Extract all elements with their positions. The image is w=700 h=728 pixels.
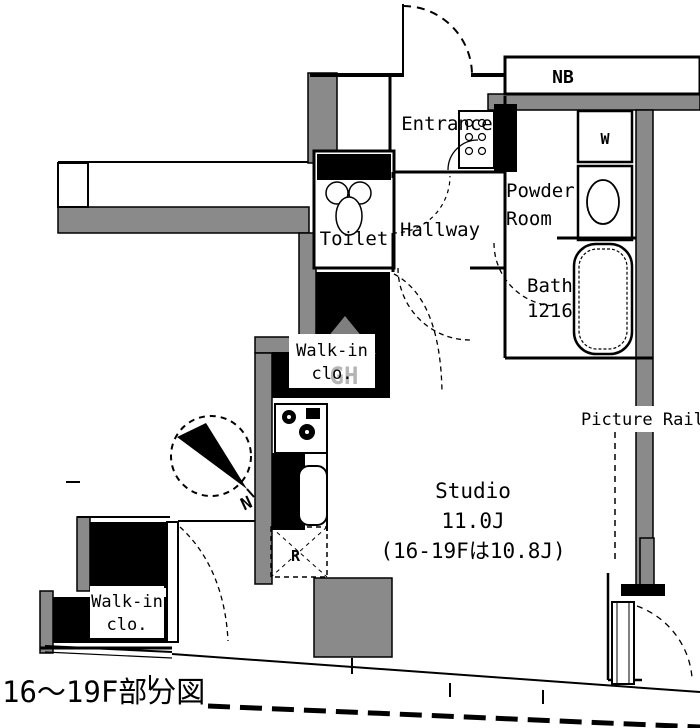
bathtub (574, 244, 632, 354)
caption-floor-range: 16〜19F部分図 (2, 675, 205, 709)
label-picture-rail: Picture Rail (581, 410, 700, 430)
kitchen-sink (299, 466, 327, 525)
label-entrance: Entrance (401, 113, 493, 135)
label-hallway: Hallway (400, 219, 480, 241)
washbasin-box (578, 166, 632, 240)
floor-plan-canvas: NB Entrance Toilet Hallway W Powder Room… (0, 0, 700, 728)
label-walkin-bottom-1: Walk-in (91, 592, 163, 612)
label-bath-1: Bath (527, 275, 573, 297)
label-walkin-mid-1: Walk-in (296, 341, 368, 361)
compass-needle-icon (177, 423, 247, 489)
label-studio-2: 11.0J (441, 509, 504, 533)
label-nb: NB (552, 67, 574, 88)
label-bath-2: 1216 (527, 300, 573, 322)
closet-bl-black-upper (90, 522, 170, 588)
wall-top-left-band (58, 207, 309, 233)
wall-closet-left-upper (77, 517, 90, 591)
wall-balcony-cap-black (621, 584, 665, 596)
walkin-mid-door-arc (394, 274, 442, 392)
wall-balcony-column (640, 538, 654, 586)
label-studio-3: (16-19Fは10.8J) (380, 539, 565, 563)
label-toilet: Toilet (320, 228, 389, 250)
balcony-edge-left-b (45, 652, 172, 658)
balcony-outer-dashed-wall (208, 706, 700, 727)
label-fridge: R (291, 547, 301, 565)
nb-band (505, 57, 700, 94)
wall-column-bottom (314, 578, 392, 657)
wall-top-right-band (488, 94, 700, 110)
label-washer: W (600, 130, 610, 148)
closet-bl-door-arc (180, 527, 228, 641)
label-studio-1: Studio (435, 479, 511, 503)
closet-bl-door-panel (167, 522, 178, 642)
label-walkin-bottom-2: clo. (107, 615, 148, 635)
front-door-swing-arc (403, 6, 472, 75)
label-walkin-mid-2: clo. (312, 364, 353, 384)
label-powder-1: Powder (506, 180, 575, 202)
balcony-door-arc (637, 606, 692, 678)
balcony-door-panel (612, 602, 634, 684)
hallway-studio-door-arc (398, 268, 470, 340)
wall-closet-left-lower (40, 591, 53, 653)
label-powder-2: Room (506, 208, 552, 230)
wall-step-top-left (58, 163, 88, 207)
wall-left-lower (255, 353, 272, 584)
toilet-shelf (317, 154, 391, 180)
wall-right (636, 110, 653, 587)
balcony-tick-marks (150, 658, 543, 704)
floor-plan: NB Entrance Toilet Hallway W Powder Room… (0, 0, 700, 728)
entrance-closet-black (494, 104, 517, 172)
